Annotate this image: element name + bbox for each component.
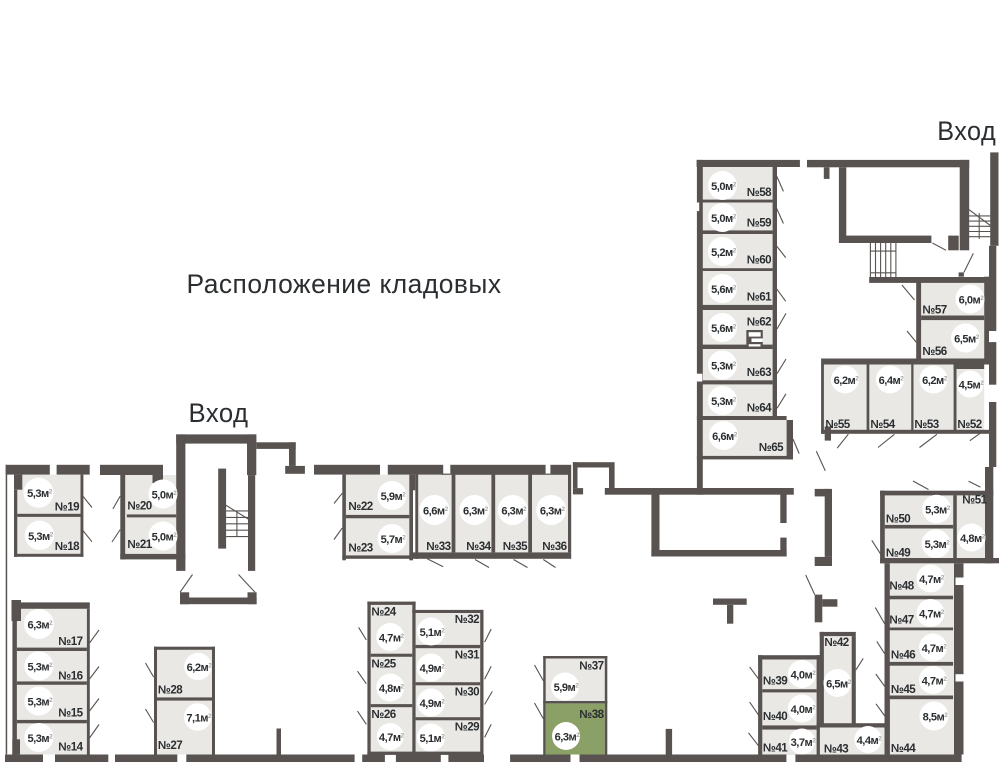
svg-text:№58: №58 bbox=[747, 186, 772, 199]
svg-text:№59: №59 bbox=[747, 217, 772, 230]
svg-text:№40: №40 bbox=[763, 710, 787, 723]
svg-text:№37: №37 bbox=[579, 660, 603, 673]
svg-text:№31: №31 bbox=[455, 649, 480, 662]
svg-text:№38: №38 bbox=[579, 708, 604, 721]
svg-text:№26: №26 bbox=[372, 708, 397, 721]
svg-text:№36: №36 bbox=[542, 540, 567, 553]
svg-text:№39: №39 bbox=[763, 675, 788, 688]
svg-text:№50: №50 bbox=[886, 513, 910, 526]
svg-text:№29: №29 bbox=[455, 721, 480, 734]
svg-text:№15: №15 bbox=[58, 707, 83, 720]
svg-text:№45: №45 bbox=[891, 683, 916, 696]
svg-text:№20: №20 bbox=[128, 500, 152, 513]
svg-text:№34: №34 bbox=[466, 540, 491, 553]
svg-text:№18: №18 bbox=[55, 540, 80, 553]
svg-text:№51: №51 bbox=[962, 494, 987, 507]
svg-text:№63: №63 bbox=[747, 366, 772, 379]
svg-text:№44: №44 bbox=[891, 742, 916, 755]
svg-text:№55: №55 bbox=[826, 418, 851, 431]
svg-text:№62: №62 bbox=[747, 316, 771, 329]
svg-text:Вход: Вход bbox=[189, 398, 249, 428]
svg-text:№48: №48 bbox=[890, 580, 915, 593]
svg-text:№27: №27 bbox=[158, 739, 182, 752]
svg-text:Вход: Вход bbox=[937, 116, 996, 146]
svg-text:№43: №43 bbox=[824, 743, 849, 756]
svg-text:№42: №42 bbox=[825, 636, 849, 649]
svg-text:№19: №19 bbox=[55, 501, 80, 514]
svg-text:№33: №33 bbox=[426, 540, 451, 553]
svg-text:№60: №60 bbox=[747, 254, 771, 267]
svg-text:№52: №52 bbox=[958, 418, 982, 431]
svg-text:№65: №65 bbox=[759, 441, 784, 454]
svg-text:№14: №14 bbox=[58, 741, 83, 754]
svg-text:№56: №56 bbox=[923, 345, 948, 358]
svg-text:№24: №24 bbox=[372, 606, 397, 619]
svg-text:№21: №21 bbox=[128, 538, 153, 551]
svg-text:№64: №64 bbox=[747, 402, 772, 415]
svg-text:№30: №30 bbox=[455, 686, 479, 699]
svg-text:№49: №49 bbox=[886, 547, 911, 560]
svg-text:№54: №54 bbox=[871, 418, 896, 431]
svg-text:№25: №25 bbox=[372, 658, 397, 671]
svg-text:№41: №41 bbox=[763, 742, 788, 755]
svg-text:№16: №16 bbox=[58, 670, 83, 683]
svg-text:№46: №46 bbox=[891, 649, 916, 662]
svg-text:№23: №23 bbox=[349, 542, 374, 555]
svg-text:№28: №28 bbox=[158, 684, 183, 697]
svg-text:№35: №35 bbox=[503, 540, 528, 553]
svg-text:№61: №61 bbox=[747, 291, 772, 304]
svg-text:№47: №47 bbox=[890, 614, 914, 627]
svg-text:№32: №32 bbox=[455, 613, 479, 626]
svg-text:№53: №53 bbox=[915, 418, 940, 431]
svg-text:№17: №17 bbox=[58, 635, 82, 648]
svg-text:№57: №57 bbox=[923, 304, 947, 317]
svg-text:Расположение кладовых: Расположение кладовых bbox=[187, 269, 502, 299]
svg-text:№22: №22 bbox=[349, 500, 373, 513]
